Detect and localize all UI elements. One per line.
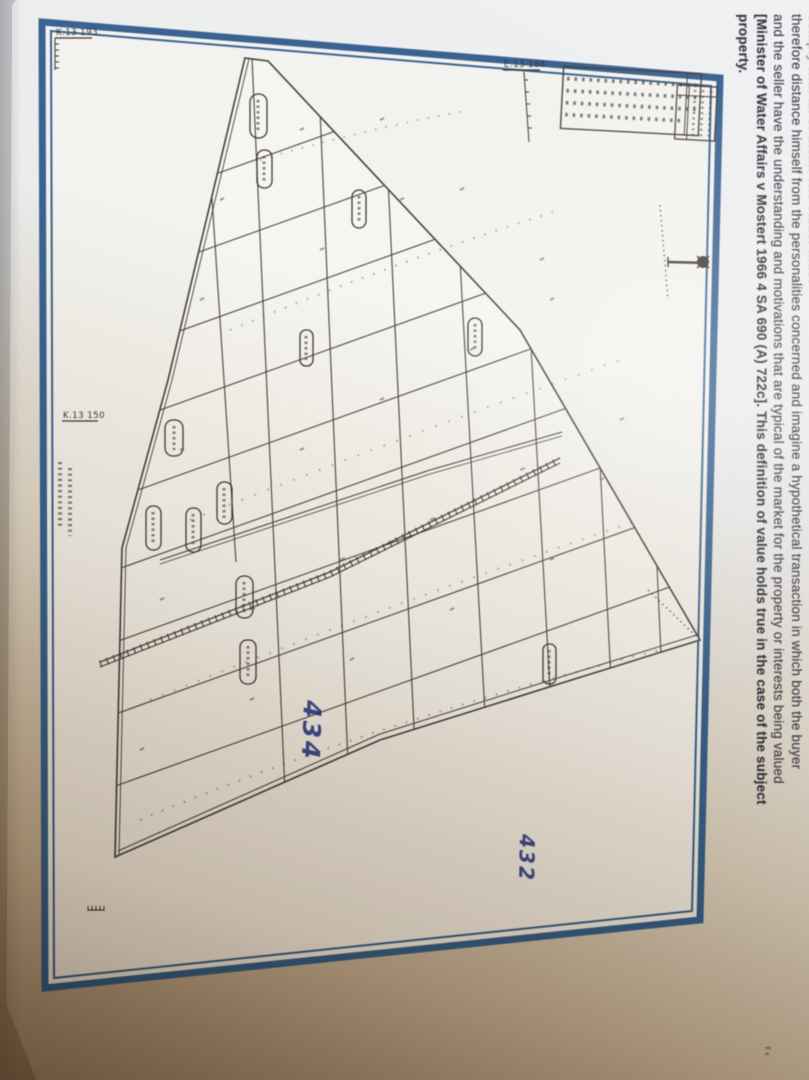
report-line: therefore distance himself from the pers… — [787, 14, 804, 1076]
report-line: comply with all of them. The Valuer must — [805, 14, 809, 1076]
ref-label-top-middle: E.13 188 — [504, 60, 546, 70]
survey-diagram: K.13 193 E.13 188 K.13 150 434 432 — [0, 0, 809, 1080]
handwritten-parcel-number-432: 432 — [514, 833, 539, 882]
ref-label-left: K.13 150 — [63, 411, 105, 421]
photograph: K.13 193 E.13 188 K.13 150 434 432 compl… — [0, 0, 809, 1080]
report-line: and the seller have the understanding an… — [770, 14, 787, 1076]
report-line: property. — [735, 14, 752, 1076]
ref-label-top-left: K.13 193 — [56, 28, 98, 38]
handwritten-parcel-number-434: 434 — [296, 699, 327, 762]
report-line: [Minister of Water Affairs v Mostert 196… — [752, 14, 769, 1076]
report-paragraph: comply with all of them. The Valuer must… — [735, 14, 809, 1076]
